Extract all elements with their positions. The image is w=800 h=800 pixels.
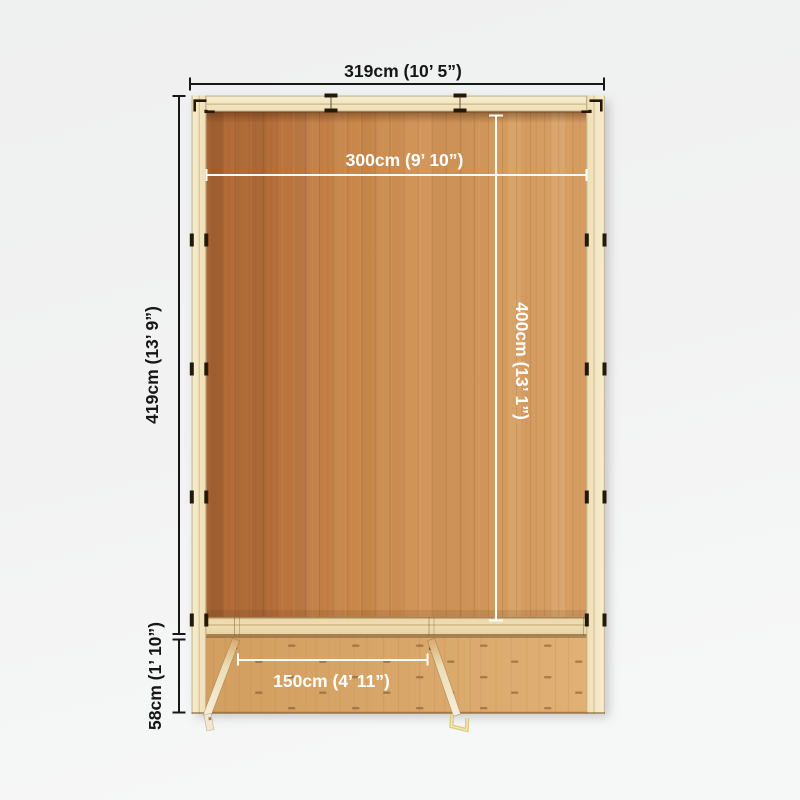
svg-text:419cm (13’ 9”): 419cm (13’ 9”) (142, 306, 162, 424)
svg-text:319cm (10’ 5”): 319cm (10’ 5”) (344, 61, 462, 81)
svg-text:58cm (1’ 10”): 58cm (1’ 10”) (145, 622, 165, 730)
svg-text:300cm (9’ 10”): 300cm (9’ 10”) (346, 150, 464, 170)
svg-text:400cm (13’ 1”): 400cm (13’ 1”) (512, 302, 532, 420)
svg-text:150cm (4’ 11”): 150cm (4’ 11”) (273, 671, 390, 691)
